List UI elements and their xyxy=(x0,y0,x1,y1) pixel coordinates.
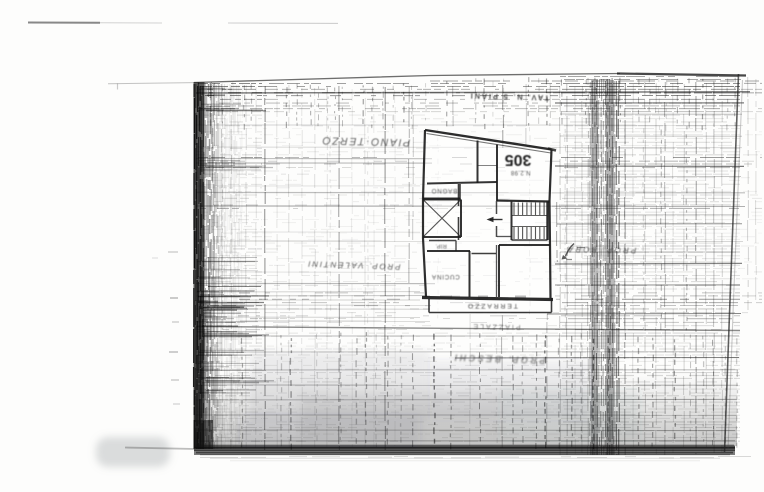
svg-text:N.2.98: N.2.98 xyxy=(510,169,530,175)
svg-text:PROP. BORA: PROP. BORA xyxy=(566,245,637,255)
svg-text:PIANO·TERZO: PIANO·TERZO xyxy=(321,134,411,148)
svg-text:CUCINA: CUCINA xyxy=(431,273,460,280)
svg-text:RIP.: RIP. xyxy=(435,243,447,249)
svg-text:305: 305 xyxy=(505,151,532,168)
svg-text:TERRAZZO: TERRAZZO xyxy=(466,302,518,309)
svg-text:BAGNO: BAGNO xyxy=(431,187,457,194)
svg-text:PIAZZALE: PIAZZALE xyxy=(471,322,520,330)
